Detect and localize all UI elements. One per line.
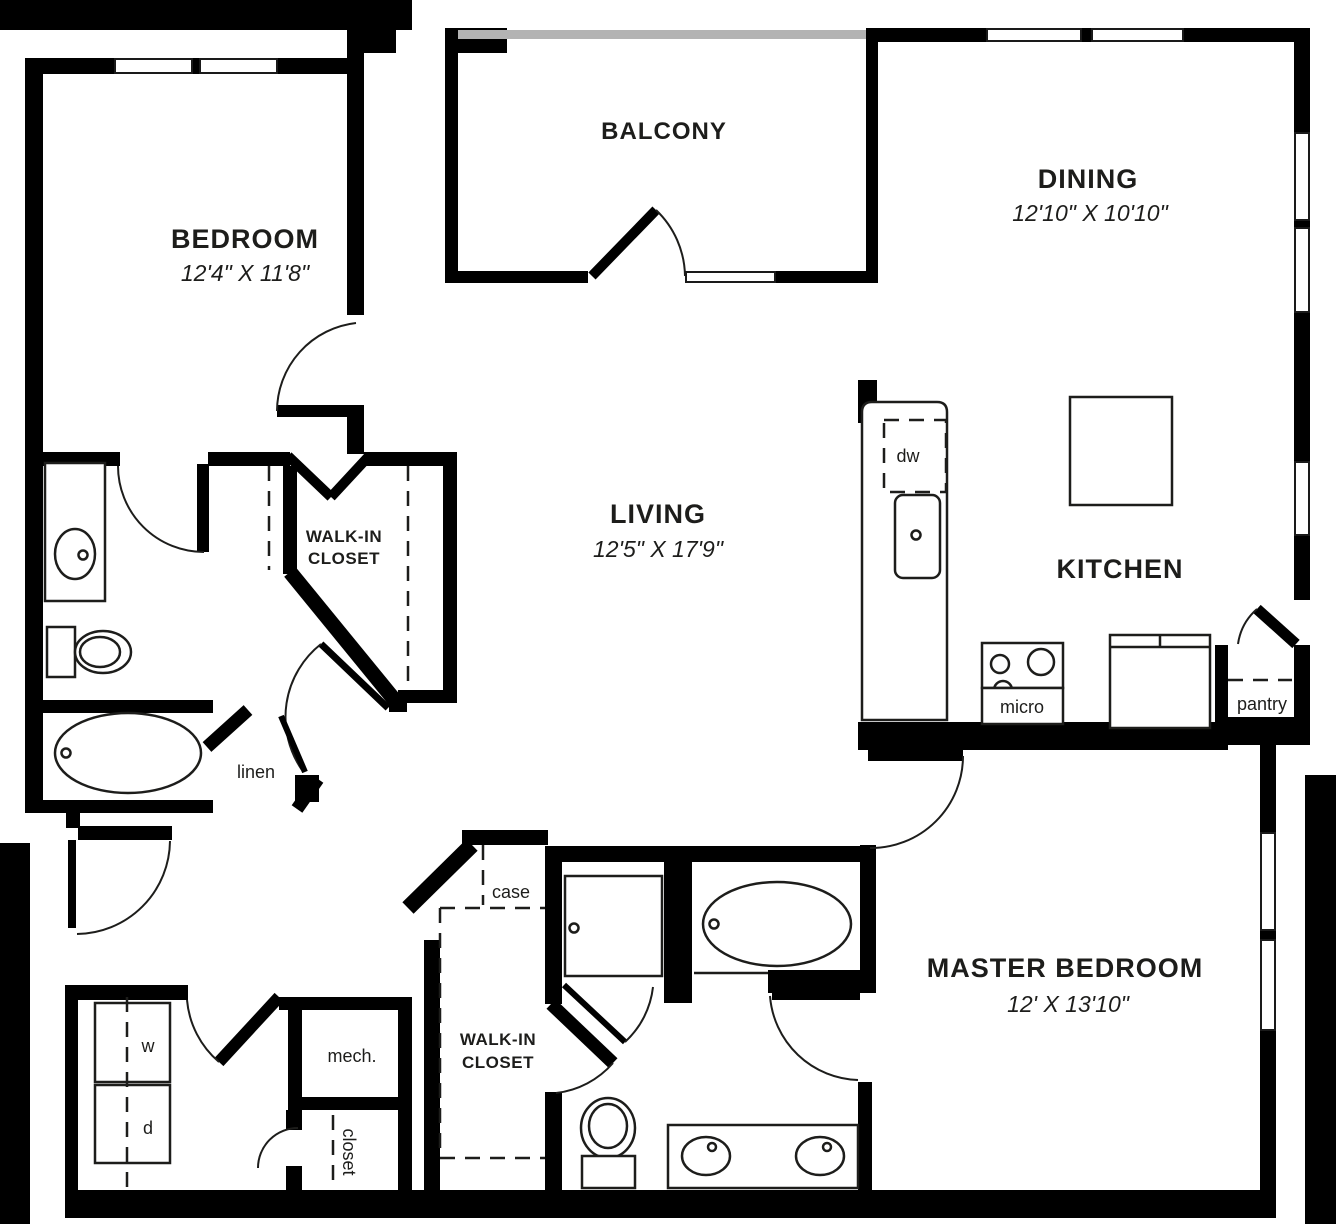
kitchen-sink [895,495,940,578]
bedroom-window-1 [115,59,192,73]
closet1-label-1: WALK-IN [306,527,382,546]
pantry-door-arc [1238,609,1257,644]
dining-window-right-2 [1295,228,1309,312]
bedroom-window-2 [200,59,277,73]
bath1-hall-door-arc [285,644,321,770]
dw-label: dw [896,446,920,466]
floor-plan: BEDROOM 12'4" X 11'8" BALCONY DINING 12'… [0,0,1336,1224]
right-edge-strip [1305,775,1336,1224]
dining-window-top-2 [1092,29,1183,41]
mech-label: mech. [327,1046,376,1066]
shower-door-arc [625,987,653,1042]
balcony-railing [458,30,866,39]
washer [95,1003,170,1082]
shower [565,876,662,976]
micro-label: micro [1000,697,1044,717]
dining-window-right-1 [1295,133,1309,220]
balcony-door-arc [656,210,685,276]
dryer-label: d [143,1118,153,1138]
pantry-label: pantry [1237,694,1287,714]
closet2-door-arc [556,1063,613,1093]
refrigerator [1110,635,1210,728]
master-bath-door-arc [770,996,858,1080]
balcony-label: BALCONY [601,118,727,145]
hall-door-arc [77,841,170,934]
kitchen-island [1070,397,1172,505]
toilet-1 [47,627,131,677]
closet-door-arc [258,1128,298,1168]
master-window-1 [1261,833,1275,930]
closet2-label-1: WALK-IN [460,1030,536,1049]
closet2-label-2: CLOSET [462,1053,534,1072]
floor-plan-svg: BEDROOM 12'4" X 11'8" BALCONY DINING 12'… [0,0,1336,1224]
dryer [95,1085,170,1163]
bathtub-1 [55,713,201,793]
living-label: LIVING [610,499,706,529]
dining-window-top-1 [987,29,1081,41]
master-bedroom-dims: 12' X 13'10" [1007,991,1131,1017]
closet-label: closet [339,1128,359,1175]
master-bedroom-label: MASTER BEDROOM [927,953,1204,983]
balcony-window [686,272,775,282]
dining-label: DINING [1038,164,1139,194]
living-dims: 12'5" X 17'9" [593,536,725,562]
laundry-door-arc [187,1000,219,1062]
bathtub-2 [694,882,851,973]
case-label: case [492,882,530,902]
toilet-2 [581,1098,635,1188]
closet1-label-2: CLOSET [308,549,380,568]
master-window-2 [1261,940,1275,1030]
linen-label: linen [237,762,275,782]
bedroom-door-arc [277,323,356,411]
top-banner [0,0,412,30]
vanity-1 [45,463,105,601]
bath1-door-arc [118,466,204,552]
dining-dims: 12'10" X 10'10" [1012,200,1169,226]
bedroom-label: BEDROOM [171,224,319,254]
vanity-2 [668,1125,858,1188]
washer-label: w [141,1036,156,1056]
master-entry-door-arc [870,756,963,848]
kitchen-label: KITCHEN [1057,554,1184,584]
kitchen-window [1295,462,1309,535]
left-edge-strip [0,843,30,1224]
bedroom-dims: 12'4" X 11'8" [181,260,311,286]
